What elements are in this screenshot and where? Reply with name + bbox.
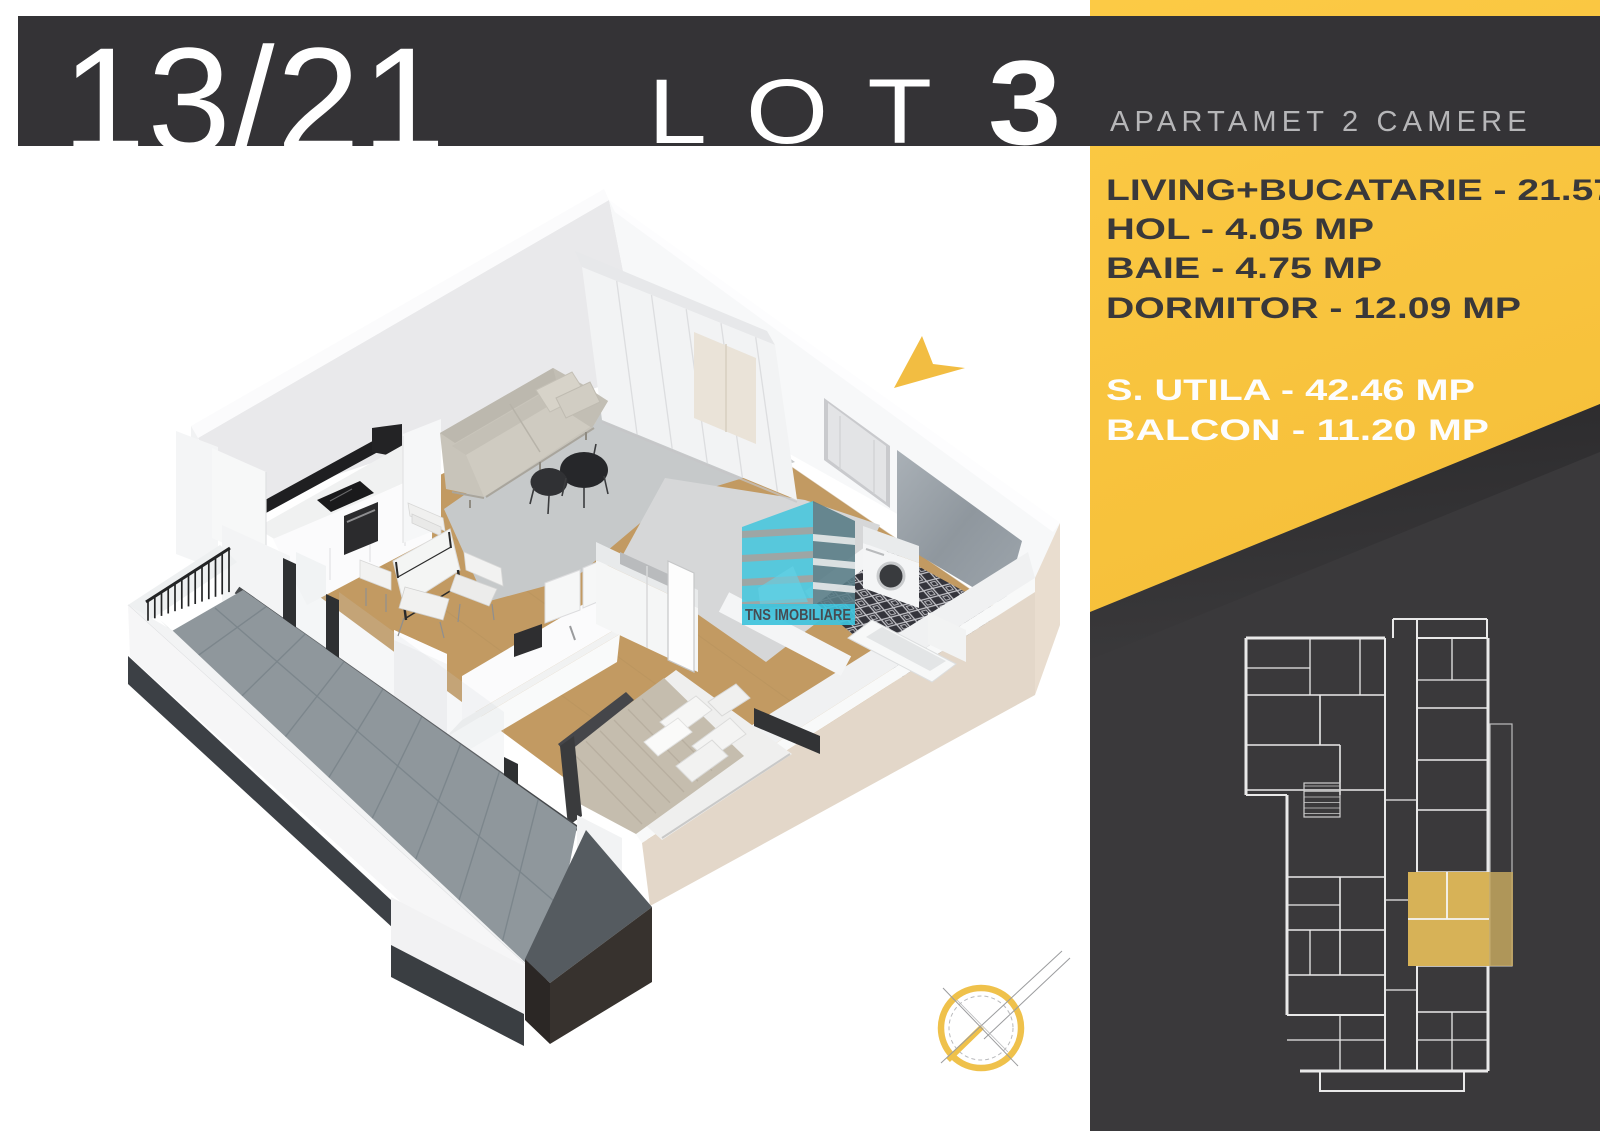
svg-text:HOL - 4.05 MP: HOL - 4.05 MP (1106, 213, 1374, 246)
svg-text:BAIE - 4.75 MP: BAIE - 4.75 MP (1106, 252, 1382, 285)
svg-text:APARTAMET 2 CAMERE: APARTAMET 2 CAMERE (1110, 106, 1532, 138)
svg-text:LIVING+BUCATARIE - 21.57: LIVING+BUCATARIE - 21.57 (1106, 174, 1600, 207)
svg-text:13/21: 13/21 (62, 16, 447, 184)
svg-text:DORMITOR - 12.09 MP: DORMITOR - 12.09 MP (1106, 292, 1521, 325)
svg-text:3: 3 (988, 36, 1061, 170)
svg-text:LOT: LOT (648, 60, 971, 163)
svg-text:BALCON - 11.20 MP: BALCON - 11.20 MP (1106, 414, 1489, 447)
svg-text:TNS IMOBILIARE: TNS IMOBILIARE (745, 607, 851, 624)
svg-text:S. UTILA - 42.46 MP: S. UTILA - 42.46 MP (1106, 374, 1475, 407)
